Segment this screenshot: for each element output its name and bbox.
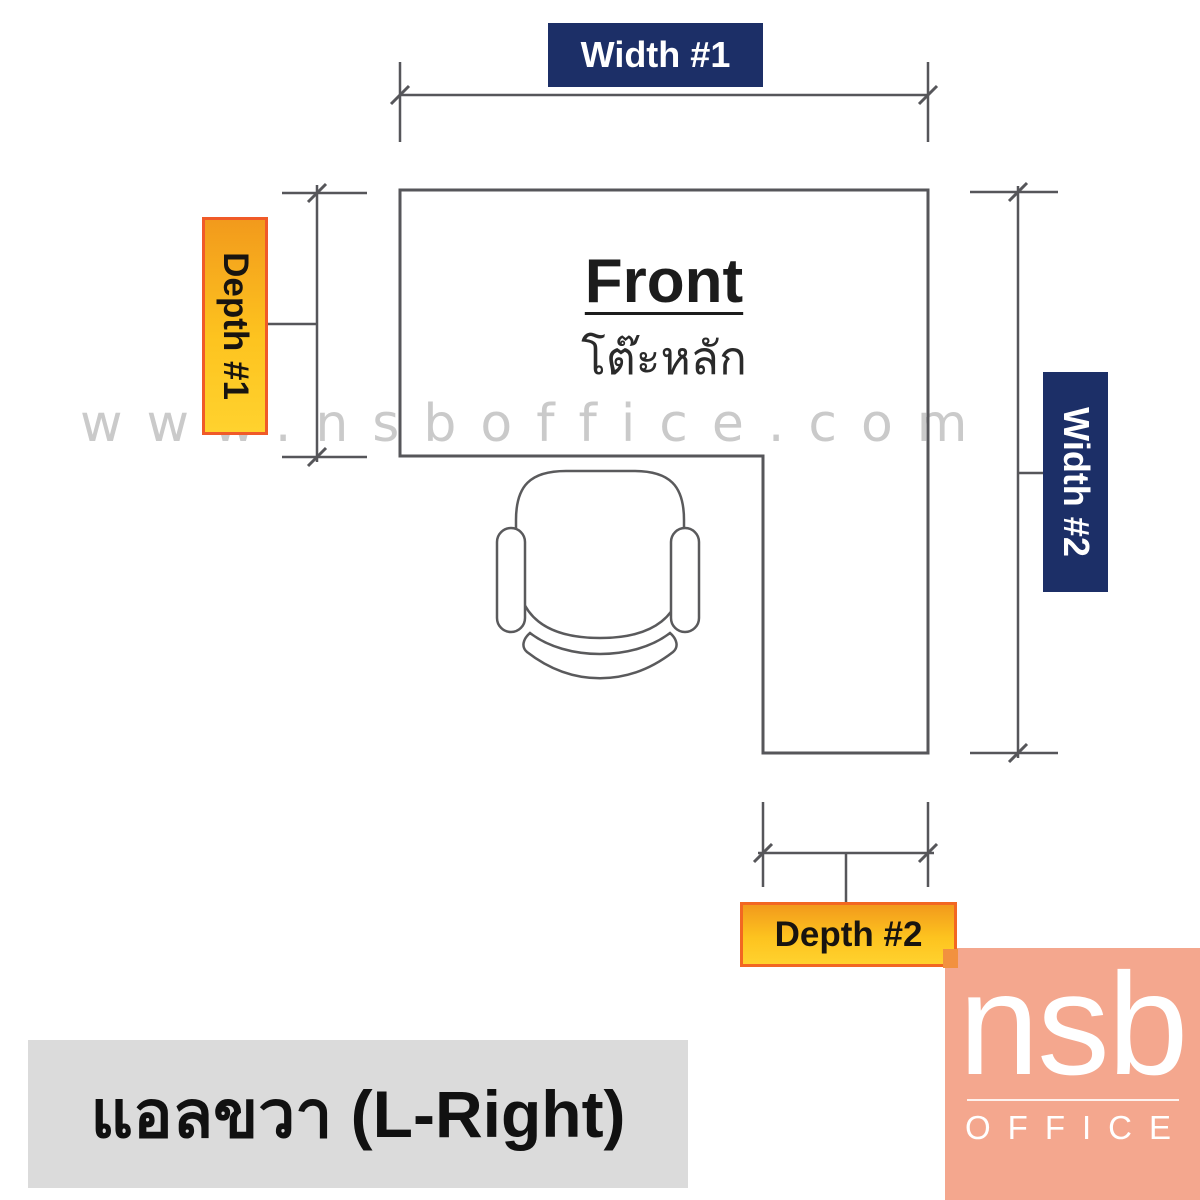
depth2-label-text: Depth #2 [775,915,923,955]
width2-label-text: Width #2 [1055,407,1097,557]
floorplan-diagram: www.nsboffice.com [0,0,1200,1200]
logo-divider [967,1099,1179,1101]
depth2-label: Depth #2 [740,902,957,967]
chair [497,471,699,678]
width1-label-text: Width #1 [581,34,731,76]
dimension-depth2 [754,802,937,902]
width2-label: Width #2 [1043,372,1108,592]
caption-text: แอลขวา (L-Right) [90,1062,625,1167]
dimension-depth1 [268,184,367,466]
logo-subbrand-text: OFFICE [965,1109,1188,1147]
label-logo-overlap-patch [943,949,958,968]
chair-backrest [523,633,676,678]
chair-seat [516,471,684,638]
chair-armrest-right [671,528,699,632]
caption-box: แอลขวา (L-Right) [28,1040,688,1188]
depth1-label-text: Depth #1 [215,252,255,400]
desk-front-label: Front [400,246,928,317]
chair-armrest-left [497,528,525,632]
nsb-office-logo: nsb OFFICE [945,948,1200,1200]
depth1-label: Depth #1 [202,217,268,435]
desk-front-label-thai: โต๊ะหลัก [400,322,928,395]
logo-brand-text: nsb [959,952,1187,1097]
width1-label: Width #1 [548,23,763,87]
